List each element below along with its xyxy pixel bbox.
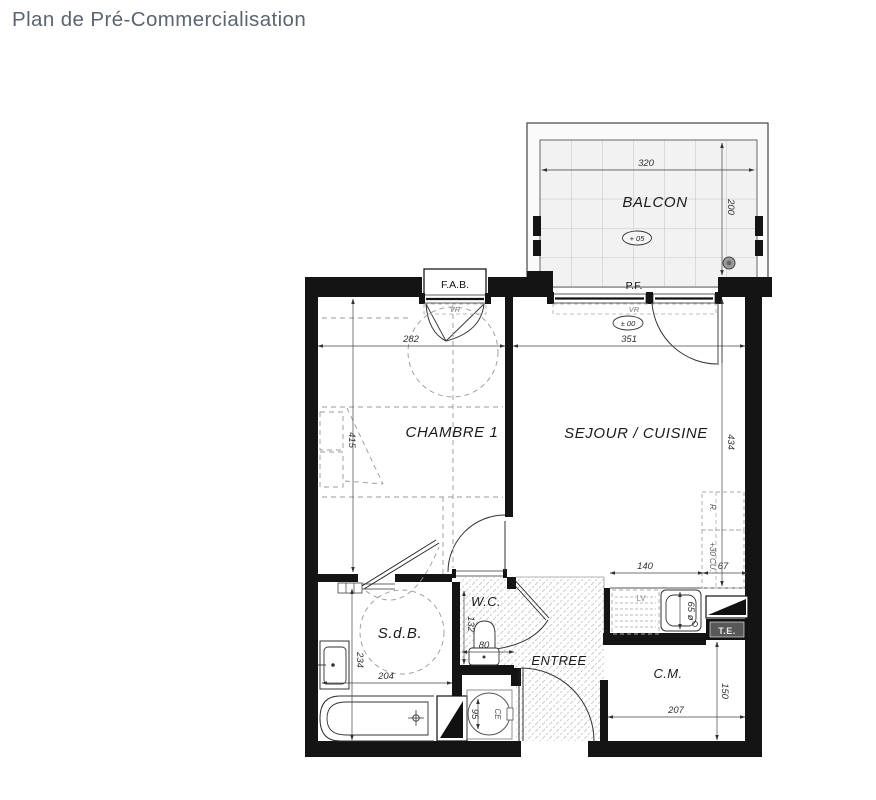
chambre-door-threshold xyxy=(452,571,507,576)
threshold-cap xyxy=(452,569,456,578)
dim-sdb-width: 204 xyxy=(377,671,394,682)
label-vr-sejour: VR xyxy=(629,305,640,314)
toilet-flush xyxy=(483,656,486,659)
wall-kitchen-stub xyxy=(604,588,610,637)
room-label-chambre: CHAMBRE 1 xyxy=(406,424,499,441)
label-pf: P.F. xyxy=(626,280,643,292)
balcony-parapet-block xyxy=(755,216,763,236)
dim-cm-width: 207 xyxy=(667,705,685,716)
floor-plan-page: Plan de Pré-Commercialisation xyxy=(0,0,876,800)
dim-balcon-depth: 200 xyxy=(725,198,736,216)
window-jamb xyxy=(419,293,425,304)
window-jamb xyxy=(547,292,554,304)
wall-sdb-stub xyxy=(452,675,462,697)
window-jamb xyxy=(485,293,491,304)
wall-top-mid xyxy=(488,277,550,297)
dim-wc-width: 80 xyxy=(479,640,490,651)
room-label-wc: W.C. xyxy=(471,594,501,609)
label-cooktop: +30 CU. xyxy=(708,542,717,572)
dim-balcon-width: 320 xyxy=(638,158,655,169)
balcony-parapet-block xyxy=(533,216,541,236)
dim-sejour-depth: 434 xyxy=(725,434,736,450)
room-label-sdb: S.d.B. xyxy=(378,625,422,642)
dim-sejour-width: 351 xyxy=(621,334,637,345)
label-vr-chambre: VR xyxy=(450,305,461,314)
dim-ce: 95 xyxy=(469,709,480,720)
label-lv: LV xyxy=(636,594,646,603)
balcony-parapet-block xyxy=(533,240,541,256)
dim-chambre-depth: 415 xyxy=(346,432,357,449)
balcony-door-swing xyxy=(652,303,719,364)
dim-chambre-width: 282 xyxy=(402,334,420,345)
label-ce: CE xyxy=(493,708,502,720)
wall-left xyxy=(305,277,318,757)
balcony-drain-center xyxy=(727,261,732,266)
wardrobe-dashed xyxy=(320,452,343,487)
dim-sink: 65 ø xyxy=(685,601,696,620)
room-label-cm: C.M. xyxy=(653,666,682,681)
wall-chambre-sejour xyxy=(505,297,513,517)
wall-wc-jamb xyxy=(507,577,516,589)
room-label-balcon: BALCON xyxy=(622,194,687,211)
wall-cm-top xyxy=(603,633,706,645)
entree-fixtures: CE 95 xyxy=(467,690,513,739)
window-jamb xyxy=(646,292,653,304)
dim-counter: 140 xyxy=(637,561,654,572)
window-jamb xyxy=(715,292,722,304)
water-heater-pipe xyxy=(507,708,513,720)
wall-sdb-top-left xyxy=(318,574,358,582)
label-fridge: R. xyxy=(708,504,717,512)
chambre-door-swing xyxy=(448,515,505,572)
balcony-parapet-block xyxy=(755,240,763,256)
washbasin-drain xyxy=(331,663,335,667)
label-te: T.E. xyxy=(718,626,736,636)
label-fab: F.A.B. xyxy=(441,279,469,291)
interior-walls xyxy=(318,297,706,741)
wall-top-left xyxy=(305,277,422,297)
elevation-sejour: ± 00 xyxy=(621,319,636,328)
sdb-door-swing xyxy=(366,547,439,600)
wall-bottom-left xyxy=(305,741,521,757)
floor-plan-drawing: 320 200 BALCON + 05 P.F. xyxy=(0,0,876,800)
balcony: 320 200 BALCON + 05 P.F. xyxy=(527,123,768,297)
dim-counter-side: 67 xyxy=(718,561,729,572)
dim-sdb-depth: 234 xyxy=(354,651,365,668)
wardrobe-dashed xyxy=(320,412,343,450)
room-label-entree: ENTREE xyxy=(531,653,586,668)
balcony-door-leaf xyxy=(718,303,722,363)
dim-cm-depth: 150 xyxy=(719,683,730,700)
wall-wc-bottom xyxy=(452,665,514,675)
elevation-balcon: + 05 xyxy=(630,234,646,243)
wall-cm-left xyxy=(600,680,608,741)
room-label-sejour: SEJOUR / CUISINE xyxy=(564,425,708,442)
wall-sdb-top-right xyxy=(395,574,452,582)
sdb-fixtures xyxy=(318,583,467,741)
wall-right xyxy=(745,277,762,757)
radiator xyxy=(338,583,362,593)
wall-bottom-right xyxy=(588,741,762,757)
dim-wc-depth: 132 xyxy=(465,616,476,633)
wall-entree-jamb xyxy=(511,668,521,686)
wall-wc-left xyxy=(452,582,460,668)
